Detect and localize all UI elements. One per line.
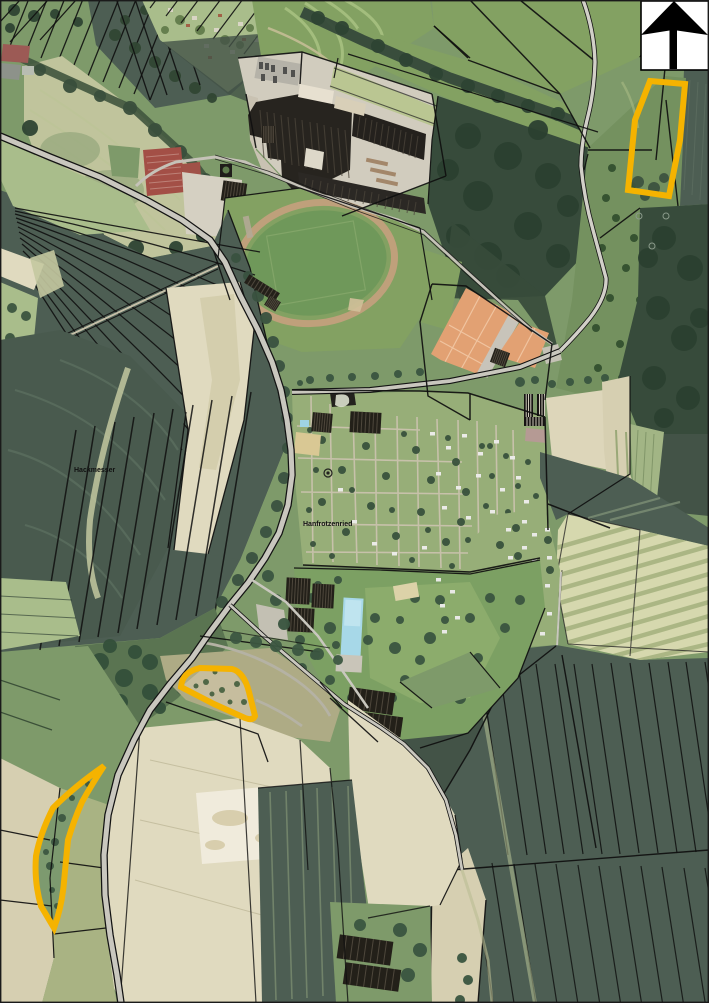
- svg-text:Hackmesser: Hackmesser: [74, 467, 116, 474]
- svg-text:Hanfrotzenried: Hanfrotzenried: [303, 521, 352, 528]
